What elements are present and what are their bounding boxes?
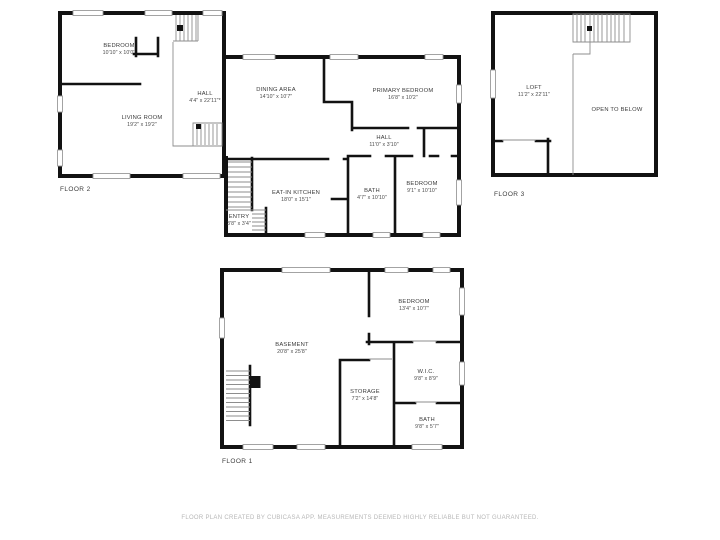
footer-disclaimer: FLOOR PLAN CREATED BY CUBICASA APP. MEAS… [0, 515, 720, 521]
room-dims-f2-primary-bedroom: 16'8" x 10'2" [388, 95, 418, 101]
floor3-interior-walls [493, 139, 550, 175]
room-label-f2-living-room: LIVING ROOM [122, 115, 163, 121]
floor2-stair-marker2 [196, 124, 201, 129]
room-label-f2-dining-area: DINING AREA [256, 87, 296, 93]
room-label-f3-open-to-below: OPEN TO BELOW [591, 107, 642, 113]
room-label-f1-basement: BASEMENT [275, 342, 309, 348]
room-dims-f1-wic: 9'8" x 8'9" [414, 376, 438, 382]
room-dims-f2-bedroom2: 9'1" x 10'10" [407, 188, 437, 194]
floor-plan-canvas: BEDROOM 10'10" x 10'0" LIVING ROOM 19'2"… [0, 0, 720, 540]
room-dims-f2-living-room: 19'2" x 19'2" [127, 122, 157, 128]
floor2-interior-walls [60, 38, 459, 235]
floor3-stair-marker [587, 26, 592, 31]
floor1-stair-marker [251, 376, 261, 388]
room-label-f2-primary-bedroom: PRIMARY BEDROOM [373, 88, 434, 94]
room-dims-f2-dining-area: 14'10" x 10'7" [260, 94, 293, 100]
room-label-f2-hall2: HALL [376, 135, 392, 141]
room-dims-f2-bedroom: 10'10" x 10'0" [103, 50, 136, 56]
room-label-f1-wic: W.I.C. [418, 369, 435, 375]
floor2-stair-marker [177, 25, 183, 31]
room-label-f1-storage: STORAGE [350, 389, 380, 395]
room-dims-f2-hall: 4'4" x 22'11"* [189, 98, 220, 104]
floor3-windows [491, 70, 496, 98]
floor1-caption: FLOOR 1 [222, 458, 253, 465]
room-label-f1-bath: BATH [419, 417, 435, 423]
room-label-f2-entry: ENTRY [229, 214, 250, 220]
room-label-f2-bedroom2: BEDROOM [406, 181, 437, 187]
floor3-plan: LOFT 11'2" x 22'11" OPEN TO BELOW [491, 13, 657, 175]
room-dims-f1-bath: 9'8" x 5'7" [415, 424, 439, 430]
floor1-plan: BASEMENT 20'8" x 25'8" BEDROOM 13'4" x 1… [220, 268, 465, 450]
room-dims-f1-bedroom: 13'4" x 10'7" [399, 306, 429, 312]
room-dims-f2-bath: 4'7" x 10'10" [357, 195, 387, 201]
room-dims-f3-loft: 11'2" x 22'11" [518, 92, 550, 98]
room-label-f2-eat-in-kitchen: EAT-IN KITCHEN [272, 190, 320, 196]
floor2-caption: FLOOR 2 [60, 186, 91, 193]
floor2-plan: BEDROOM 10'10" x 10'0" LIVING ROOM 19'2"… [58, 11, 462, 238]
floor-plan-page: BEDROOM 10'10" x 10'0" LIVING ROOM 19'2"… [0, 0, 720, 540]
room-dims-f2-eat-in-kitchen: 18'0" x 15'1" [281, 197, 311, 203]
room-label-f1-bedroom: BEDROOM [398, 299, 429, 305]
room-dims-f1-basement: 20'8" x 25'8" [277, 349, 307, 355]
room-dims-f2-hall2: 11'0" x 3'10" [369, 142, 398, 148]
room-label-f2-hall: HALL [197, 91, 213, 97]
floor3-caption: FLOOR 3 [494, 191, 525, 198]
room-label-f2-bedroom: BEDROOM [103, 43, 134, 49]
room-label-f2-bath: BATH [364, 188, 380, 194]
room-dims-f1-storage: 7'2" x 14'8" [352, 396, 379, 402]
room-label-f3-loft: LOFT [526, 85, 542, 91]
room-dims-f2-entry: 3'8" x 3'4" [227, 221, 251, 227]
